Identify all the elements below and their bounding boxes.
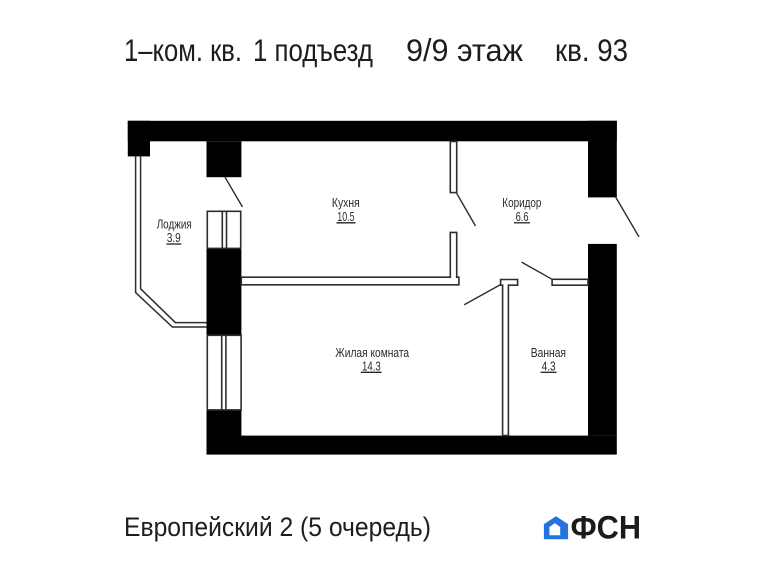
svg-text:Европейский 2 (5 очередь): Европейский 2 (5 очередь) (124, 512, 431, 542)
svg-text:9/9 этаж: 9/9 этаж (406, 32, 523, 68)
svg-text:3.9: 3.9 (167, 230, 181, 245)
svg-text:6.6: 6.6 (516, 209, 529, 224)
svg-text:Коридор: Коридор (502, 195, 541, 210)
svg-text:Кухня: Кухня (332, 195, 360, 210)
svg-text:ФСН: ФСН (571, 510, 642, 546)
svg-text:10.5: 10.5 (337, 209, 354, 224)
svg-text:1–ком. кв.: 1–ком. кв. (124, 32, 242, 68)
svg-text:кв. 93: кв. 93 (555, 32, 628, 68)
svg-text:1 подъезд: 1 подъезд (253, 32, 373, 68)
svg-text:14.3: 14.3 (362, 358, 381, 373)
svg-text:4.3: 4.3 (542, 358, 556, 373)
